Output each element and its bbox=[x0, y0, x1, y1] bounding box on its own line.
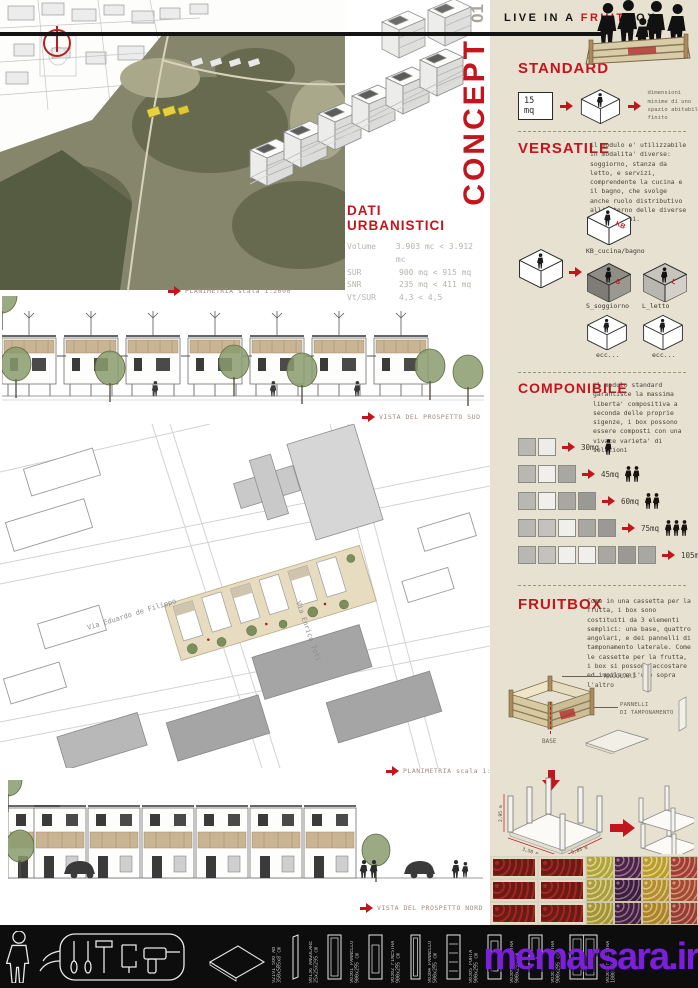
module-cube-kb: KB bbox=[586, 205, 632, 245]
arrow-icon bbox=[622, 523, 635, 533]
module-cube-icon bbox=[580, 86, 621, 126]
panel-label: 90304_PANNELLO 500x295 cm bbox=[428, 931, 439, 983]
caption-planimetria-2000: PLANIMETRIA scala 1:2000 bbox=[168, 286, 291, 296]
module-squares bbox=[518, 546, 656, 564]
componibile-row: 105mq bbox=[518, 546, 693, 564]
module-label-l: L_letto bbox=[642, 302, 669, 310]
module-squares bbox=[518, 465, 576, 483]
dati-title: DATI URBANISTICI bbox=[347, 203, 482, 233]
panel-label: 90136_ANGOLARE 25x25x295 cm bbox=[309, 931, 320, 983]
concept-title: CONCEPT bbox=[458, 38, 492, 206]
top-rule bbox=[0, 32, 604, 36]
componibile-row: 75mq bbox=[518, 519, 693, 537]
pannello-frame-icon bbox=[326, 933, 344, 981]
tools-speech-bubble bbox=[38, 931, 188, 983]
module-cube-s: S bbox=[586, 262, 632, 302]
section-divider bbox=[518, 585, 686, 586]
module-cube-l: L bbox=[642, 262, 688, 302]
componibile-rows: 30mq45mq60mq75mq105mq bbox=[518, 438, 693, 573]
dati-urbanistici: DATI URBANISTICI Volume3.903 mc < 3.912 … bbox=[347, 203, 482, 305]
arrow-icon bbox=[560, 101, 573, 111]
dati-row: Volume3.903 mc < 3.912 mc bbox=[347, 241, 482, 267]
arrow-icon bbox=[386, 766, 399, 776]
poster-board: DATI URBANISTICI Volume3.903 mc < 3.912 … bbox=[0, 0, 698, 988]
arrow-icon bbox=[662, 550, 675, 560]
module-squares bbox=[518, 519, 616, 537]
module-label-s: S_soggiorno bbox=[586, 302, 629, 310]
module-cube-ecc bbox=[642, 314, 684, 350]
fruit-boxes-photo bbox=[586, 856, 698, 925]
area-label: 105mq bbox=[681, 551, 698, 560]
caption-planimetria-500: PLANIMETRIA scala 1:500 bbox=[386, 766, 505, 776]
componibile-row: 30mq bbox=[518, 438, 693, 456]
finestra-frame-icon bbox=[367, 933, 385, 981]
leader-line bbox=[562, 676, 602, 677]
area-badge: 15 mq bbox=[518, 92, 553, 120]
fruitbox-people-illustration bbox=[576, 0, 696, 68]
people-icons bbox=[645, 493, 660, 509]
caption-prospetto-sud: VISTA DEL PROSPETTO SUD bbox=[362, 412, 481, 422]
fruitbox-body: Come in una cassetta per la frutta, i bo… bbox=[587, 597, 691, 690]
panel-label: 90301_PANNELLO 900x295 cm bbox=[350, 931, 361, 983]
module-squares bbox=[518, 438, 556, 456]
panel-label: 90302_FINESTRA 900x295 cm bbox=[391, 931, 402, 983]
base-panel-icon bbox=[208, 932, 266, 982]
arrow-icon bbox=[168, 286, 181, 296]
dati-row: SNR235 mq < 411 mq bbox=[347, 279, 482, 292]
label-base: BASE bbox=[542, 737, 556, 746]
area-label: 30mq bbox=[581, 443, 599, 452]
module-squares bbox=[518, 492, 596, 510]
arrow-icon bbox=[628, 101, 641, 111]
fruit-crates-photo bbox=[490, 856, 586, 925]
label-angolari: ANGOLARI bbox=[604, 672, 636, 681]
module-cube-plain bbox=[518, 248, 564, 288]
module-label-ecc: ecc... bbox=[652, 351, 675, 359]
label-pannelli: PANNELLI DI TAMPONAMENTO bbox=[620, 701, 674, 718]
sidebar: LIVE IN A FRUITBOX STANDARD 15 mq bbox=[490, 0, 698, 925]
area-label: 60mq bbox=[621, 497, 639, 506]
builder-person-icon bbox=[6, 931, 32, 983]
leader-line-base bbox=[550, 702, 551, 734]
arrow-right-icon bbox=[610, 819, 635, 837]
people-icons bbox=[625, 466, 640, 482]
pannello-icon bbox=[676, 694, 690, 734]
stacked-boxes bbox=[639, 786, 694, 854]
svg-text:2,95 m: 2,95 m bbox=[498, 805, 504, 822]
dati-row: SUR900 mq < 915 mq bbox=[347, 267, 482, 280]
module-label-ecc: ecc... bbox=[596, 351, 619, 359]
componibile-row: 60mq bbox=[518, 492, 693, 510]
axonometric-drawing bbox=[232, 0, 487, 200]
fruit-market-photo bbox=[490, 856, 698, 925]
panel-label: 90305_PORTA 900x295 cm bbox=[469, 931, 480, 983]
section-divider bbox=[518, 131, 686, 132]
section-divider bbox=[518, 372, 686, 373]
module-cube-ecc bbox=[586, 314, 628, 350]
concept-number: 01 bbox=[468, 4, 488, 23]
standard-diagram: 15 mq dimensioni minime di uno spazio ab… bbox=[518, 86, 698, 126]
people-icons bbox=[665, 520, 688, 536]
module-label-kb: KB_cucina/bagno bbox=[586, 247, 645, 255]
angolari-icon bbox=[640, 660, 654, 696]
pannello-narrow-icon bbox=[408, 933, 422, 981]
leader-line bbox=[594, 707, 618, 708]
elevation-north-drawing bbox=[8, 780, 483, 900]
angolare-bar-icon bbox=[289, 931, 303, 983]
elevation-south-drawing bbox=[2, 296, 484, 412]
people-icons bbox=[605, 439, 612, 455]
caption-prospetto-nord: VISTA DEL PROSPETTO NORD bbox=[360, 903, 483, 913]
base-icon bbox=[582, 726, 652, 754]
standard-note: dimensioni minime di uno spazio abitabil… bbox=[648, 89, 698, 123]
site-plan-drawing: Via Eduardo de Filippo Via Enrico Toti bbox=[0, 424, 490, 768]
porta-icon bbox=[445, 933, 463, 981]
arrow-icon bbox=[569, 267, 582, 277]
arrow-icon bbox=[362, 412, 375, 422]
assembly-diagram: 2,95 m 3,50 m 5,05 m bbox=[496, 770, 694, 854]
arrow-icon bbox=[360, 903, 373, 913]
svg-text:3,50 m: 3,50 m bbox=[521, 846, 539, 854]
arrow-icon bbox=[602, 496, 615, 506]
arrow-icon bbox=[582, 469, 595, 479]
area-label: 45mq bbox=[601, 470, 619, 479]
area-label: 75mq bbox=[641, 524, 659, 533]
componibile-row: 45mq bbox=[518, 465, 693, 483]
panel-label: 92191_500_AB 350x505x8 cm bbox=[272, 931, 283, 983]
arrow-icon bbox=[562, 442, 575, 452]
watermark: memarsara.ir bbox=[483, 936, 698, 979]
